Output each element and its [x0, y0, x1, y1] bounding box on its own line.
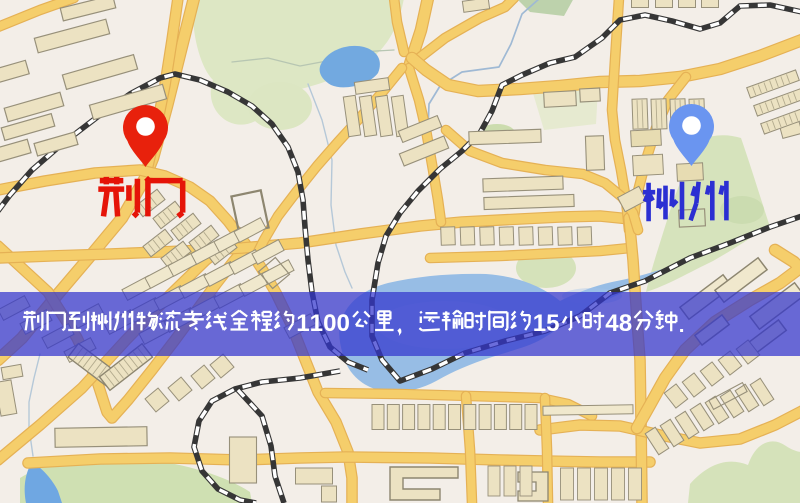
svg-text:1: 1	[296, 310, 309, 337]
svg-text:1: 1	[533, 310, 546, 337]
svg-text:0: 0	[337, 310, 350, 337]
svg-text:4: 4	[605, 310, 619, 337]
svg-text:0: 0	[323, 310, 336, 337]
svg-text:1: 1	[310, 310, 323, 337]
svg-text:8: 8	[619, 310, 632, 337]
svg-text:5: 5	[546, 310, 559, 337]
